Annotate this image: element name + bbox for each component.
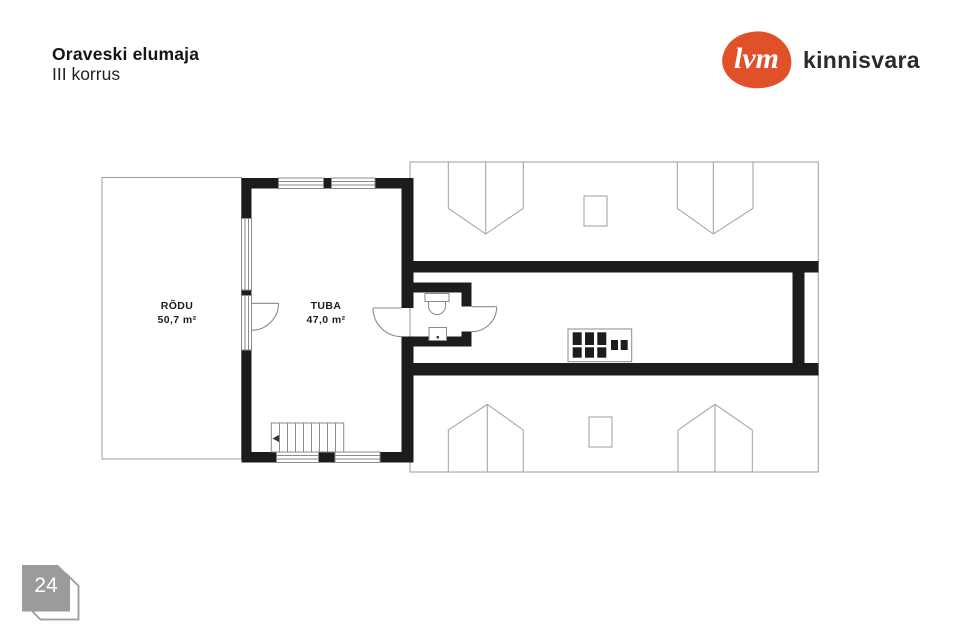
chimney-top-icon [584, 196, 607, 226]
window-top-2 [332, 178, 375, 189]
chimney-bottom-icon [589, 417, 612, 447]
logo-brand-text: kinnisvara [803, 47, 920, 74]
window-bottom-2 [335, 452, 380, 463]
window-left-1 [242, 218, 252, 290]
room-name: TUBA [271, 299, 381, 313]
window-top-1 [278, 178, 323, 189]
window-bottom-1 [277, 452, 319, 463]
room-area: 47,0 m² [271, 313, 381, 327]
page-subtitle: III korrus [52, 64, 120, 85]
window-left-2 [242, 295, 252, 350]
room-name: RÕDU [122, 299, 232, 313]
sink-icon [429, 328, 447, 341]
room-label-rodu: RÕDU 50,7 m² [122, 299, 232, 327]
stairs-icon [271, 423, 343, 452]
logo-mark-text: lvm [722, 42, 791, 76]
floor-plan-page: Oraveski elumaja III korrus lvm kinnisva… [0, 0, 960, 640]
room-label-tuba: TUBA 47,0 m² [271, 299, 381, 327]
room-area: 50,7 m² [122, 313, 232, 327]
flue-block-icon [568, 329, 632, 362]
page-number: 24 [22, 574, 70, 598]
page-title: Oraveski elumaja [52, 44, 199, 65]
roof-outline [410, 162, 818, 472]
